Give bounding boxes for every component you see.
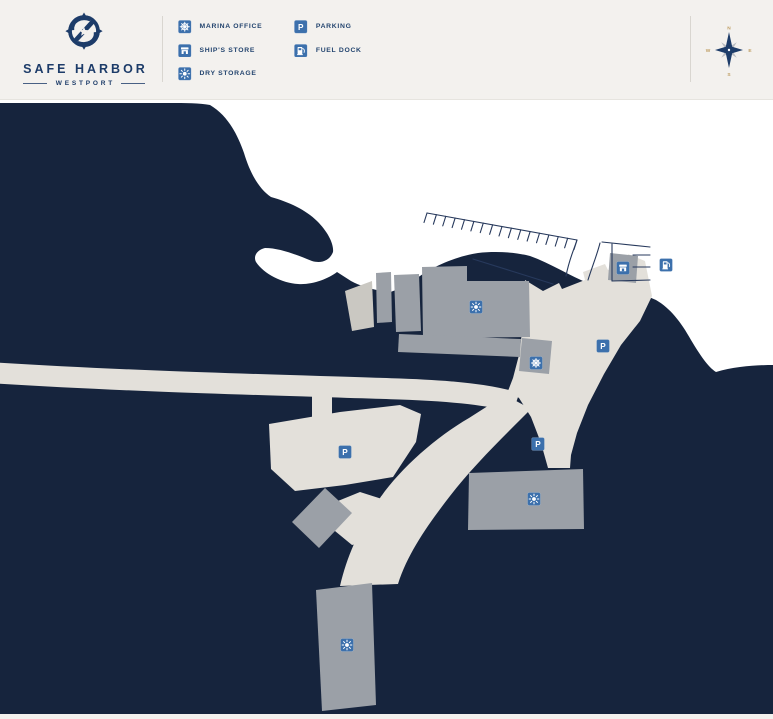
compass-south-label: S: [727, 72, 731, 78]
brand-logo-block: SAFE HARBOR WESTPORT: [12, 6, 156, 87]
compass-east-label: E: [748, 48, 752, 54]
legend-label-fuel-dock: FUEL DOCK: [316, 47, 362, 54]
brand-name: SAFE HARBOR: [12, 62, 156, 76]
brand-rule-left: [23, 83, 47, 84]
fuel-pump-icon: [294, 44, 308, 58]
parking-marker: [532, 438, 545, 451]
parking-marker: [339, 446, 352, 459]
compass-rose: N E S W: [701, 22, 757, 80]
parking-icon: [294, 20, 308, 34]
legend-item-fuel-dock: FUEL DOCK: [294, 44, 361, 58]
legend-label-ships-store: SHIP'S STORE: [200, 47, 256, 54]
legend-label-marina-office: MARINA OFFICE: [200, 23, 263, 30]
ships-wheel-logo-icon: [56, 6, 112, 60]
header-divider-right: [690, 16, 691, 82]
legend-item-ships-store: SHIP'S STORE: [178, 44, 262, 58]
dry-storage-marker: [470, 301, 483, 314]
fuel-dock-marker: [660, 259, 673, 272]
header: SAFE HARBOR WESTPORT MARINA OFFICESHIP'S…: [0, 0, 773, 100]
building: [394, 274, 421, 332]
marina-map-svg: [0, 100, 773, 714]
parking-marker: [597, 340, 610, 353]
header-divider-left: [162, 16, 163, 82]
legend-item-parking: PARKING: [294, 20, 361, 34]
brand-location: WESTPORT: [53, 80, 115, 87]
dry-storage-marker: [341, 639, 354, 652]
dry-storage-marker: [528, 493, 541, 506]
ships-store-marker: [617, 262, 630, 275]
brand-rule-right: [121, 83, 145, 84]
marina-map: [0, 100, 773, 714]
legend-label-parking: PARKING: [316, 23, 352, 30]
legend-item-dry-storage: DRY STORAGE: [178, 67, 262, 81]
sun-icon: [178, 67, 192, 81]
legend-item-marina-office: MARINA OFFICE: [178, 20, 262, 34]
compass-west-label: W: [706, 48, 711, 54]
marina-office-marker: [530, 357, 543, 370]
compass-north-label: N: [727, 26, 731, 32]
building: [376, 272, 392, 323]
map-legend: MARINA OFFICESHIP'S STOREDRY STORAGEPARK…: [178, 20, 362, 81]
legend-label-dry-storage: DRY STORAGE: [200, 70, 257, 77]
helm-icon: [178, 20, 192, 34]
storefront-icon: [178, 44, 192, 58]
dry-storage-building-east: [468, 469, 584, 530]
